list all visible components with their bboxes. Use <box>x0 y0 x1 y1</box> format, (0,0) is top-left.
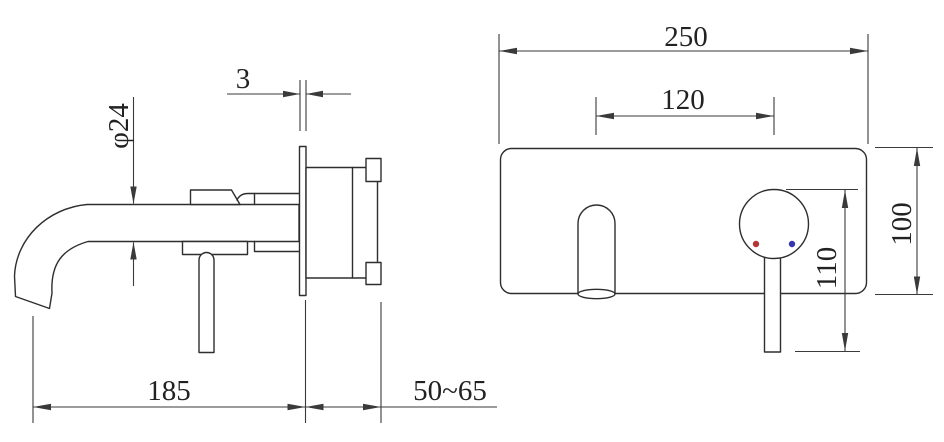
dim-label-plate-thickness: 3 <box>236 63 251 95</box>
dim-spout-diameter: φ24 <box>103 97 137 286</box>
faucet-technical-drawing: 3 φ24 185 50~65 <box>0 0 944 442</box>
handle-lever-front <box>765 250 781 352</box>
cold-indicator-dot <box>789 241 795 247</box>
dim-wall-depth: 50~65 <box>306 302 498 423</box>
dim-plate-width: 250 <box>499 21 868 144</box>
top-collar-line <box>237 194 299 201</box>
dim-label-spout-diameter: φ24 <box>103 103 135 149</box>
dim-label-plate-width: 250 <box>664 21 708 53</box>
dim-label-handle-length: 110 <box>811 247 843 289</box>
cartridge-top-block <box>191 190 241 205</box>
spout-outlet-ellipse <box>578 289 615 298</box>
dim-spout-reach: 185 <box>33 300 306 423</box>
dim-plate-height: 100 <box>875 148 933 295</box>
handle-lever-side <box>199 253 214 353</box>
dim-spout-to-handle: 120 <box>596 84 774 135</box>
valve-body <box>306 168 378 279</box>
mounting-bracket-bottom <box>366 263 381 285</box>
dim-plate-thickness: 3 <box>227 63 351 131</box>
side-view: 3 φ24 185 50~65 <box>15 63 498 423</box>
spout-front <box>578 205 615 294</box>
hot-indicator-dot <box>753 241 759 247</box>
handle-knob-circle <box>740 190 809 259</box>
wall-plate-side <box>300 147 307 296</box>
dim-label-wall-depth: 50~65 <box>413 375 487 407</box>
dim-label-spout-to-handle: 120 <box>661 84 705 116</box>
cartridge-bottom-block <box>183 242 248 255</box>
bottom-collar-line <box>255 242 300 252</box>
dim-label-spout-reach: 185 <box>147 375 191 407</box>
spout-side-profile <box>15 205 300 309</box>
mounting-bracket-top <box>366 159 381 182</box>
technical-drawing-svg: 3 φ24 185 50~65 <box>0 0 944 442</box>
dim-label-plate-height: 100 <box>886 202 918 246</box>
front-view: 250 120 100 110 <box>499 21 933 352</box>
